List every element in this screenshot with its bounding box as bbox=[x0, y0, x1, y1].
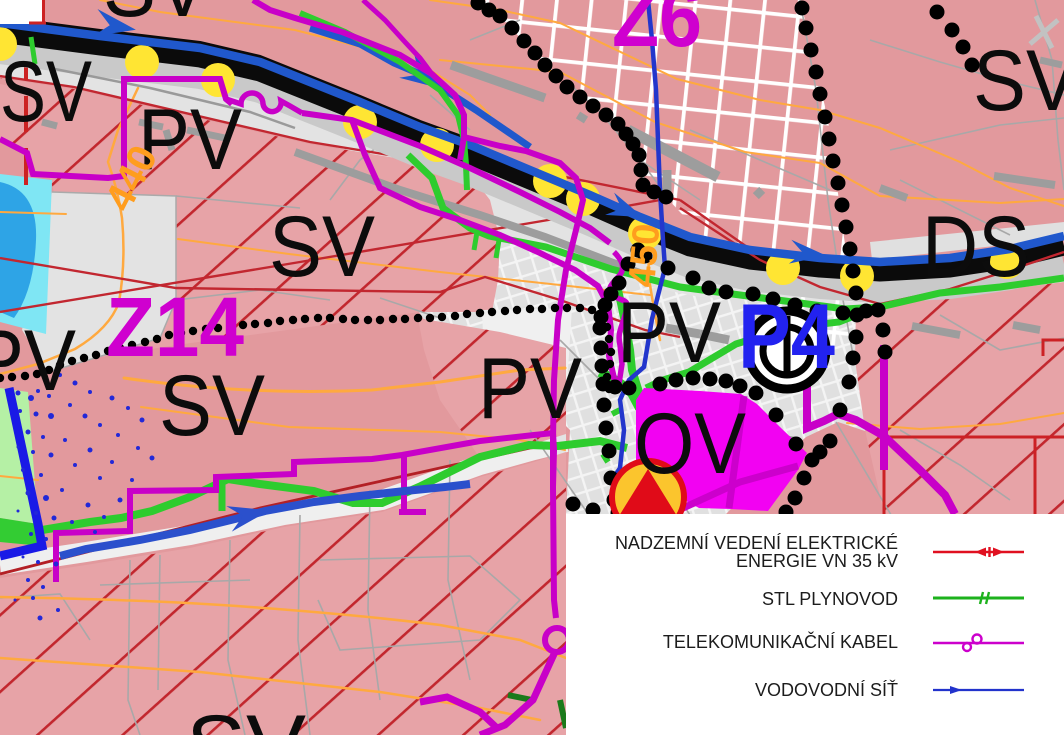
svg-text:PV: PV bbox=[617, 285, 721, 381]
svg-text:VODOVODNÍ SÍŤ: VODOVODNÍ SÍŤ bbox=[755, 680, 898, 700]
svg-text:ENERGIE VN 35 kV: ENERGIE VN 35 kV bbox=[736, 551, 898, 571]
svg-text:SV: SV bbox=[269, 199, 375, 295]
svg-text:DS: DS bbox=[922, 199, 1030, 295]
svg-text:Z6: Z6 bbox=[612, 0, 702, 64]
svg-text:SV: SV bbox=[103, 0, 209, 35]
svg-text:STL PLYNOVOD: STL PLYNOVOD bbox=[762, 589, 898, 609]
svg-text:TELEKOMUNIKAČNÍ KABEL: TELEKOMUNIKAČNÍ KABEL bbox=[663, 631, 898, 652]
svg-text:SV: SV bbox=[159, 358, 265, 454]
svg-text:PV: PV bbox=[478, 341, 582, 437]
svg-text:SV: SV bbox=[0, 44, 92, 140]
svg-text:PV: PV bbox=[0, 313, 76, 409]
svg-text:P4: P4 bbox=[738, 286, 835, 388]
svg-text:NADZEMNÍ VEDENÍ ELEKTRICKÉ: NADZEMNÍ VEDENÍ ELEKTRICKÉ bbox=[615, 533, 898, 553]
svg-text:SV: SV bbox=[186, 698, 306, 735]
svg-text:SV: SV bbox=[973, 33, 1064, 129]
svg-text:OV: OV bbox=[634, 396, 746, 492]
svg-text:450: 450 bbox=[621, 222, 668, 289]
